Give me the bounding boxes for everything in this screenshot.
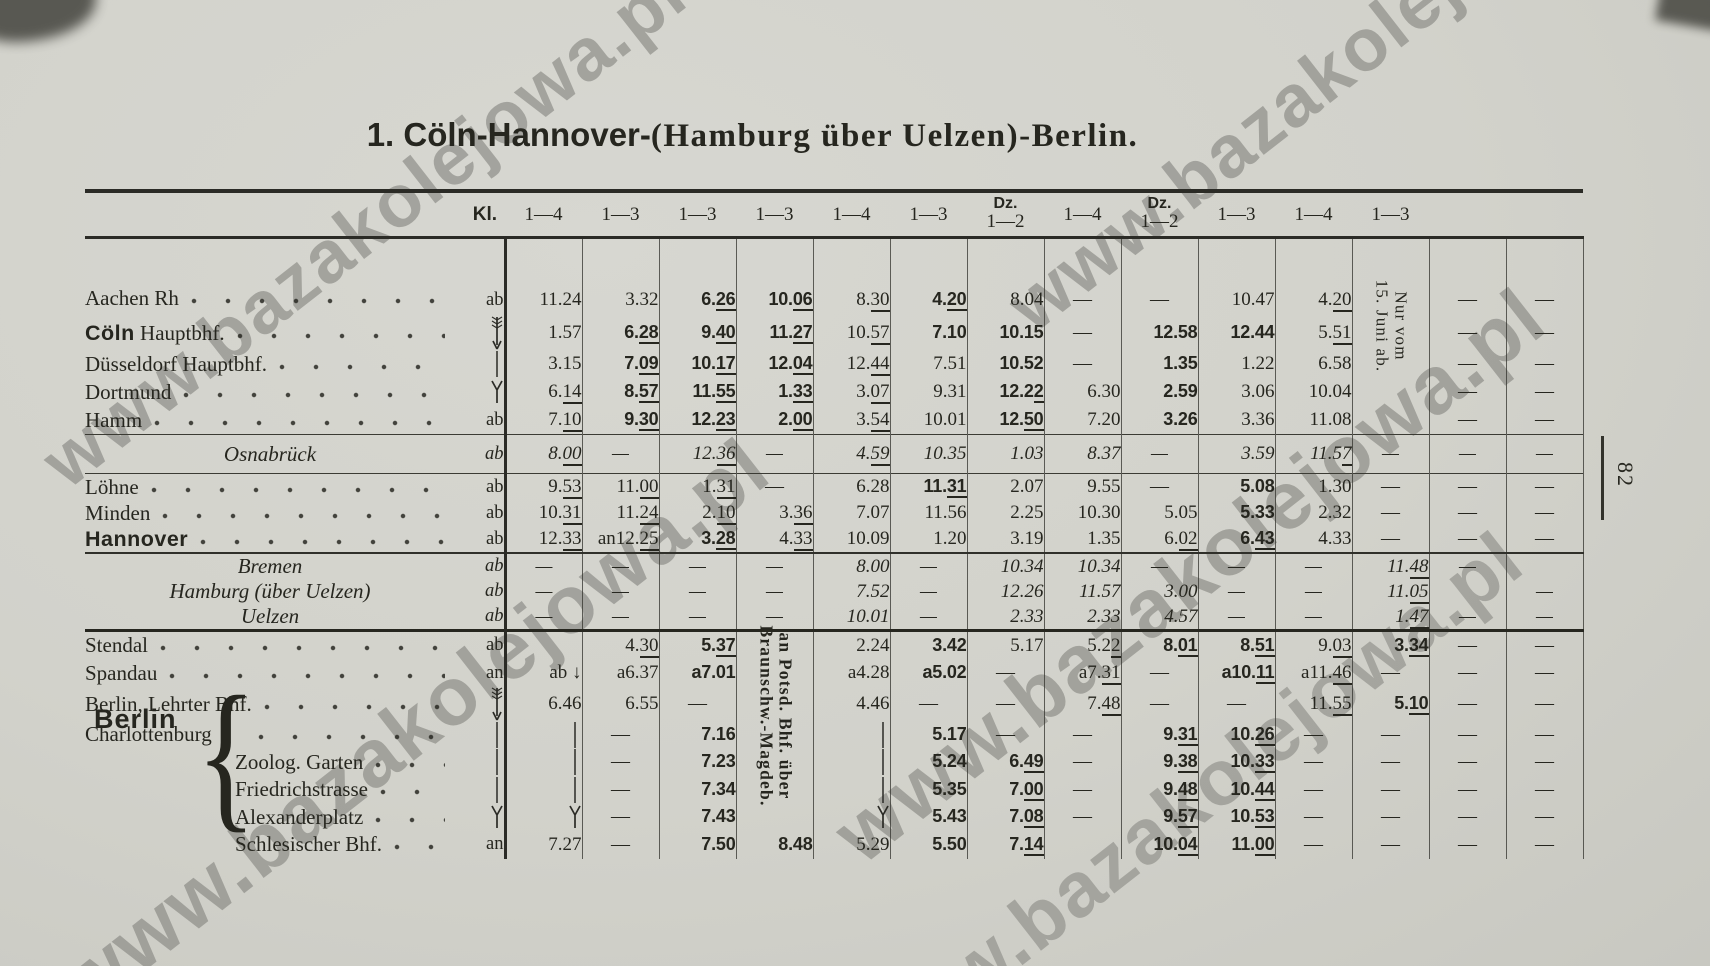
time-cell: 12.58 [1121, 316, 1198, 350]
time-cell: — [505, 579, 582, 604]
time-cell: — [1506, 350, 1583, 378]
class-column-header: 1—3 [736, 191, 813, 238]
time-cell: 5.37 [659, 631, 736, 660]
time-cell: — [659, 579, 736, 604]
time-cell: 9.31 [1121, 721, 1198, 749]
time-cell: 3.42 [890, 631, 967, 660]
time-cell: 11.55 [659, 378, 736, 406]
time-cell: — [1506, 804, 1583, 832]
time-cell: — [890, 553, 967, 579]
time-cell: 3.00 [1121, 579, 1198, 604]
time-cell: — [1506, 474, 1583, 501]
time-cell: 4.59 [813, 435, 890, 474]
time-cell: 9.55 [1044, 474, 1121, 501]
time-cell: 11.27 [736, 316, 813, 350]
time-cell: — [1352, 526, 1429, 553]
time-cell [1506, 553, 1583, 579]
time-cell: — [1044, 721, 1121, 749]
dotted-leader [380, 788, 445, 797]
scan-corner-shadow [0, 0, 96, 42]
time-cell: 5.35 [890, 776, 967, 804]
time-cell: — [1429, 435, 1506, 474]
time-cell: an12.25 [582, 526, 659, 553]
ab-an-cell: ab [455, 500, 505, 526]
arrow-shaft-icon [876, 722, 890, 748]
time-cell [1352, 316, 1429, 350]
time-cell: a11.46 [1275, 660, 1352, 688]
berlin-group-brace: { [196, 640, 240, 872]
time-cell: 10.04 [1121, 831, 1198, 859]
station-row: Uelzenab————10.01—2.332.334.57——1.47—— [85, 604, 1583, 631]
time-cell: 3.26 [1121, 406, 1198, 435]
station-name-cell: Cöln Hauptbhf. [85, 316, 455, 350]
time-cell [736, 804, 813, 832]
time-cell: 10.06 [736, 238, 813, 317]
time-cell: 7.09 [582, 350, 659, 378]
time-cell: 2.24 [813, 631, 890, 660]
time-cell: 4.30 [582, 631, 659, 660]
time-cell [736, 749, 813, 777]
time-cell: 11.00 [582, 474, 659, 501]
time-cell [1352, 378, 1429, 406]
class-column-header [1506, 191, 1583, 238]
time-cell: 8.51 [1198, 631, 1275, 660]
class-column-header: 1—4 [1044, 191, 1121, 238]
ab-an-cell [455, 749, 505, 777]
time-cell [1352, 406, 1429, 435]
station-row: Mindenab10.3111.242.103.367.0711.562.251… [85, 500, 1583, 526]
time-cell: 7.10 [890, 316, 967, 350]
scanned-timetable-page: www.bazakolejowa.pl www.bazakolejowa.pl … [0, 0, 1710, 966]
time-cell: 7.27 [505, 831, 582, 859]
station-name-cell: Minden [85, 500, 455, 526]
time-cell: 12.50 [967, 406, 1044, 435]
time-cell: — [736, 553, 813, 579]
ab-an-cell: ab [455, 435, 505, 474]
ab-an-cell [455, 687, 505, 721]
station-name-cell: Düsseldorf Hauptbhf. [85, 350, 455, 378]
time-cell: — [582, 831, 659, 859]
arrow-shaft-icon [490, 722, 504, 748]
time-cell: — [1121, 687, 1198, 721]
time-cell: — [1121, 435, 1198, 474]
time-cell: — [505, 604, 582, 631]
time-cell: — [1429, 687, 1506, 721]
station-name-cell: Aachen Rh [85, 238, 455, 317]
time-cell [505, 749, 582, 777]
time-cell: 8.48 [736, 831, 813, 859]
time-cell: — [1198, 687, 1275, 721]
time-cell [505, 721, 582, 749]
station-row: Löhneab9.5311.001.31—6.2811.312.079.55—5… [85, 474, 1583, 501]
time-cell: ab ↓ [505, 660, 582, 688]
station-row: Aachen Rhab11.243.326.2610.068.304.208.0… [85, 238, 1583, 317]
time-cell: 10.47 [1198, 238, 1275, 317]
time-cell: — [1429, 660, 1506, 688]
time-cell: 5.33 [1198, 500, 1275, 526]
time-cell: 10.34 [967, 553, 1044, 579]
time-cell: — [1275, 721, 1352, 749]
time-cell: — [1275, 553, 1352, 579]
time-cell [1352, 238, 1429, 317]
time-cell: — [1352, 474, 1429, 501]
time-cell: 10.53 [1198, 804, 1275, 832]
time-cell: 7.51 [890, 350, 967, 378]
time-cell: 1.20 [890, 526, 967, 553]
station-row: Dortmund6.148.5711.551.333.079.3112.226.… [85, 378, 1583, 406]
down-arrow-icon: ↓ [572, 662, 582, 683]
time-cell: 3.15 [505, 350, 582, 378]
kl-header: Kl. [455, 191, 505, 238]
time-cell: 7.16 [659, 721, 736, 749]
time-cell: 4.33 [1275, 526, 1352, 553]
time-cell: — [1275, 604, 1352, 631]
time-cell: — [1506, 579, 1583, 604]
time-cell: — [890, 604, 967, 631]
ab-an-cell: an [455, 831, 505, 859]
time-cell: 1.57 [505, 316, 582, 350]
time-cell [813, 721, 890, 749]
time-cell: 10.26 [1198, 721, 1275, 749]
time-cell: — [1429, 553, 1506, 579]
time-cell: 11.31 [890, 474, 967, 501]
time-cell: a7.01 [659, 660, 736, 688]
dotted-leader [375, 761, 445, 770]
time-cell: 9.31 [890, 378, 967, 406]
time-cell: — [967, 660, 1044, 688]
time-cell: — [582, 579, 659, 604]
time-cell: 10.15 [967, 316, 1044, 350]
station-row: Hannoverab12.33an12.253.284.3310.091.203… [85, 526, 1583, 553]
station-name-cell: Zoolog. Garten [85, 749, 455, 777]
time-cell: 1.35 [1044, 526, 1121, 553]
time-cell: 6.46 [505, 687, 582, 721]
time-cell: 7.34 [659, 776, 736, 804]
timetable: Kl.1—41—31—31—31—41—3Dz.1—21—4Dz.1—21—31… [85, 189, 1584, 859]
time-cell: 10.52 [967, 350, 1044, 378]
time-cell: — [1429, 721, 1506, 749]
ab-an-cell: ab [455, 238, 505, 317]
time-cell: — [659, 553, 736, 579]
time-cell [505, 776, 582, 804]
time-cell: 3.34 [1352, 631, 1429, 660]
station-row: Alexanderplatz—7.435.437.08—9.5710.53———… [85, 804, 1583, 832]
arrowhead-icon [490, 805, 504, 829]
ab-an-cell: ab [455, 631, 505, 660]
time-cell: — [1044, 316, 1121, 350]
station-row: Charlottenburg—7.165.17——9.3110.26———— [85, 721, 1583, 749]
time-cell: — [967, 721, 1044, 749]
time-cell: 3.32 [582, 238, 659, 317]
time-cell: — [1506, 721, 1583, 749]
station-name-cell: Schlesischer Bhf. [85, 831, 455, 859]
time-cell: 10.31 [505, 500, 582, 526]
time-cell: 10.44 [1198, 776, 1275, 804]
station-row: Stendalab4.305.372.243.425.175.228.018.5… [85, 631, 1583, 660]
time-cell: — [582, 749, 659, 777]
station-row: Spandauanab ↓a6.37a7.01a4.28a5.02—a7.31—… [85, 660, 1583, 688]
time-cell: 12.26 [967, 579, 1044, 604]
timetable-body: Aachen Rhab11.243.326.2610.068.304.208.0… [85, 238, 1583, 859]
time-cell: 5.08 [1198, 474, 1275, 501]
time-cell: 7.00 [967, 776, 1044, 804]
time-cell: 7.43 [659, 804, 736, 832]
time-cell [1044, 831, 1121, 859]
time-cell: 6.14 [505, 378, 582, 406]
time-cell [736, 631, 813, 660]
time-cell: — [1352, 721, 1429, 749]
time-cell: 8.04 [967, 238, 1044, 317]
time-cell: 12.22 [967, 378, 1044, 406]
time-cell: 8.01 [1121, 631, 1198, 660]
arrow-shaft-icon [568, 749, 582, 775]
arrow-shaft-icon [568, 722, 582, 748]
time-cell: — [1044, 804, 1121, 832]
time-cell: — [505, 553, 582, 579]
time-cell [736, 687, 813, 721]
station-name-cell: Bremen [85, 553, 455, 579]
time-cell: — [1506, 631, 1583, 660]
time-cell: 11.48 [1352, 553, 1429, 579]
time-cell: — [1044, 749, 1121, 777]
time-cell: 5.17 [890, 721, 967, 749]
time-cell: a4.28 [813, 660, 890, 688]
time-cell: 11.05 [1352, 579, 1429, 604]
class-column-header: 1—3 [1198, 191, 1275, 238]
time-cell: — [1506, 316, 1583, 350]
time-cell: 4.20 [1275, 238, 1352, 317]
time-cell: — [582, 604, 659, 631]
time-cell: — [1352, 660, 1429, 688]
time-cell: 3.07 [813, 378, 890, 406]
feathered-arrow-icon [490, 316, 504, 350]
arrow-shaft-icon [490, 351, 504, 377]
arrow-shaft-icon [876, 777, 890, 803]
time-cell: 1.22 [1198, 350, 1275, 378]
arrowhead-icon [876, 805, 890, 829]
time-cell: 9.30 [582, 406, 659, 435]
time-cell: 10.09 [813, 526, 890, 553]
ab-an-cell: ab [455, 526, 505, 553]
time-cell: — [1352, 776, 1429, 804]
time-cell: 10.33 [1198, 749, 1275, 777]
time-cell: 1.33 [736, 378, 813, 406]
time-cell: — [582, 721, 659, 749]
time-cell: 2.25 [967, 500, 1044, 526]
time-cell: 6.26 [659, 238, 736, 317]
time-cell: 10.30 [1044, 500, 1121, 526]
arrowhead-icon [568, 805, 582, 829]
time-cell: 1.31 [659, 474, 736, 501]
time-cell: 3.28 [659, 526, 736, 553]
time-cell: — [1506, 831, 1583, 859]
time-cell: — [582, 435, 659, 474]
time-cell: 7.08 [967, 804, 1044, 832]
time-cell: 1.03 [967, 435, 1044, 474]
time-cell [813, 804, 890, 832]
time-cell: 2.00 [736, 406, 813, 435]
time-cell: — [1429, 631, 1506, 660]
station-row: Zoolog. Garten—7.235.246.49—9.3810.33———… [85, 749, 1583, 777]
time-cell: 3.19 [967, 526, 1044, 553]
time-cell: 3.06 [1198, 378, 1275, 406]
time-cell: — [1352, 804, 1429, 832]
time-cell: — [1044, 776, 1121, 804]
station-row: Friedrichstrasse—7.345.357.00—9.4810.44—… [85, 776, 1583, 804]
time-cell: 2.59 [1121, 378, 1198, 406]
time-cell: 5.50 [890, 831, 967, 859]
class-column-header: 1—4 [1275, 191, 1352, 238]
time-cell: — [1275, 776, 1352, 804]
time-cell: 11.55 [1275, 687, 1352, 721]
class-column-header [1429, 191, 1506, 238]
time-cell: 5.43 [890, 804, 967, 832]
ab-an-cell: ab [455, 406, 505, 435]
time-cell [813, 776, 890, 804]
time-cell: — [736, 435, 813, 474]
time-cell: 8.00 [505, 435, 582, 474]
time-cell: — [582, 776, 659, 804]
time-cell: — [890, 687, 967, 721]
time-cell: 9.03 [1275, 631, 1352, 660]
time-cell: 3.59 [1198, 435, 1275, 474]
station-name-cell: Löhne [85, 474, 455, 501]
station-row: Berlin, Lehrter Bhf.6.466.55—4.46——7.48—… [85, 687, 1583, 721]
time-cell: — [1275, 831, 1352, 859]
time-cell [505, 804, 582, 832]
time-cell: 7.48 [1044, 687, 1121, 721]
time-cell: 1.47 [1352, 604, 1429, 631]
time-cell: — [736, 579, 813, 604]
time-cell: 2.33 [1044, 604, 1121, 631]
time-cell: 10.35 [890, 435, 967, 474]
time-cell: a10.11 [1198, 660, 1275, 688]
ab-an-cell: ab [455, 553, 505, 579]
arrow-shaft-icon [490, 749, 504, 775]
time-cell: — [582, 804, 659, 832]
time-cell: 5.10 [1352, 687, 1429, 721]
station-row: Hamburg (über Uelzen)ab————7.52—12.2611.… [85, 579, 1583, 604]
time-cell: — [1352, 500, 1429, 526]
scan-corner-shadow [1655, 0, 1710, 31]
time-cell: a5.02 [890, 660, 967, 688]
time-cell: — [1352, 831, 1429, 859]
time-cell: 7.52 [813, 579, 890, 604]
ab-an-cell [455, 776, 505, 804]
station-name-cell: Hamm [85, 406, 455, 435]
time-cell: — [1044, 350, 1121, 378]
time-cell: 9.38 [1121, 749, 1198, 777]
time-cell: — [890, 579, 967, 604]
station-row: Schlesischer Bhf.an7.27—7.508.485.295.50… [85, 831, 1583, 859]
time-cell: 10.34 [1044, 553, 1121, 579]
time-cell: 5.05 [1121, 500, 1198, 526]
station-name-cell: Hannover [85, 526, 455, 553]
page-number: 82 [1612, 462, 1638, 488]
time-cell: 8.57 [582, 378, 659, 406]
time-cell: 11.56 [890, 500, 967, 526]
time-cell: — [659, 687, 736, 721]
time-cell: — [1506, 749, 1583, 777]
header-row: Kl.1—41—31—31—31—41—3Dz.1—21—4Dz.1—21—31… [85, 191, 1583, 238]
time-cell: 7.07 [813, 500, 890, 526]
time-cell [813, 749, 890, 777]
station-name-cell: Hamburg (über Uelzen) [85, 579, 455, 604]
arrow-shaft-icon [490, 777, 504, 803]
time-cell: 10.01 [813, 604, 890, 631]
time-cell: 5.51 [1275, 316, 1352, 350]
time-cell: 10.17 [659, 350, 736, 378]
class-column-header: 1—4 [813, 191, 890, 238]
page-title: 1. Cöln-Hannover-(Hamburg über Uelzen)-B… [0, 116, 1505, 155]
time-cell: 4.46 [813, 687, 890, 721]
time-cell: — [1429, 406, 1506, 435]
time-cell: 2.07 [967, 474, 1044, 501]
time-cell: 5.17 [967, 631, 1044, 660]
time-cell [736, 721, 813, 749]
time-cell: 6.58 [1275, 350, 1352, 378]
ab-an-cell [455, 316, 505, 350]
time-cell: 1.35 [1121, 350, 1198, 378]
dotted-leader [191, 297, 445, 306]
time-cell: — [1429, 831, 1506, 859]
station-name-cell: Dortmund [85, 378, 455, 406]
time-cell: — [1121, 553, 1198, 579]
time-cell: 5.24 [890, 749, 967, 777]
time-cell: — [1429, 526, 1506, 553]
ab-an-cell [455, 350, 505, 378]
time-cell: — [1429, 238, 1506, 317]
class-column-header: 1—3 [582, 191, 659, 238]
time-cell: 6.30 [1044, 378, 1121, 406]
station-name-cell: Osnabrück [85, 435, 455, 474]
time-cell: — [1429, 350, 1506, 378]
station-name-cell: Stendal [85, 631, 455, 660]
time-cell: 6.28 [813, 474, 890, 501]
time-cell: — [1429, 316, 1506, 350]
time-cell: — [1121, 660, 1198, 688]
time-cell: 1.30 [1275, 474, 1352, 501]
time-cell: 11.24 [505, 238, 582, 317]
class-column-header: 1—3 [890, 191, 967, 238]
time-cell: 12.36 [659, 435, 736, 474]
time-cell: 12.44 [813, 350, 890, 378]
time-cell: — [1429, 474, 1506, 501]
time-cell: — [659, 604, 736, 631]
time-cell: 2.33 [967, 604, 1044, 631]
time-cell: a7.31 [1044, 660, 1121, 688]
time-cell: — [967, 687, 1044, 721]
time-cell: — [1275, 579, 1352, 604]
time-cell: — [1429, 378, 1506, 406]
arrow-shaft-icon [568, 777, 582, 803]
dotted-leader [237, 332, 445, 341]
time-cell: 5.29 [813, 831, 890, 859]
class-column-header: 1—3 [1352, 191, 1429, 238]
dotted-leader [224, 733, 445, 742]
time-cell: 4.20 [890, 238, 967, 317]
time-cell: — [1506, 500, 1583, 526]
dotted-leader [375, 816, 445, 825]
time-cell: 11.00 [1198, 831, 1275, 859]
dotted-leader [279, 363, 445, 372]
station-name-cell: Uelzen [85, 604, 455, 631]
station-row: Düsseldorf Hauptbhf.3.157.0910.1712.0412… [85, 350, 1583, 378]
time-cell: 10.04 [1275, 378, 1352, 406]
time-cell: 7.10 [505, 406, 582, 435]
time-cell: 7.20 [1044, 406, 1121, 435]
time-cell: — [1198, 579, 1275, 604]
